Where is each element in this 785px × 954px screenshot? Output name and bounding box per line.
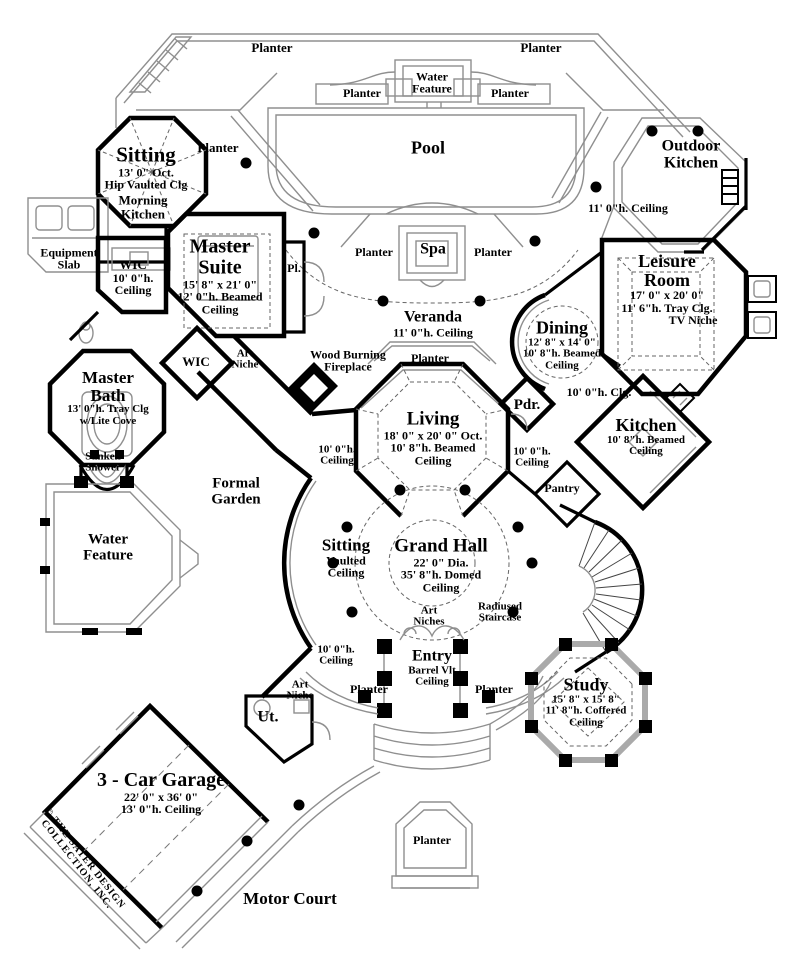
label-pdr: Pdr. <box>514 398 541 414</box>
garage-name: 3 - Car Garage <box>97 770 225 791</box>
veranda-name: Veranda <box>393 309 473 326</box>
outdoor-kitchen-line-1: Outdoor <box>662 138 721 155</box>
label-planter-entry-left: Planter <box>350 683 388 695</box>
entry-ceiling-2: Ceiling <box>408 676 456 687</box>
morning-kitchen-line-2: Kitchen <box>118 207 167 221</box>
living-ceiling-1: 10' 8"h. Beamed <box>384 442 483 454</box>
label-leisure-room: Leisure Room 17' 0" x 20' 0" 11' 6"h. Tr… <box>621 252 712 314</box>
label-pantry: Pantry <box>544 482 579 494</box>
label-art-niches: Art Niches <box>413 606 444 629</box>
terrace-pool-outlines <box>116 34 690 214</box>
label-master-suite: Master Suite 15' 8" x 21' 0" 12' 0"h. Be… <box>178 237 263 316</box>
water-feature-sw-line-2: Feature <box>83 548 133 564</box>
label-tv-niche: TV Niche <box>669 314 718 326</box>
leisure-name-2: Room <box>621 271 712 290</box>
label-planter-spa-left: Planter <box>355 246 393 258</box>
study-ceiling-2: Ceiling <box>546 717 627 728</box>
sitting-ne-name: Sitting <box>105 145 188 167</box>
dining-ceiling-2: Ceiling <box>523 360 601 371</box>
grand-hall-ceiling-1: 35' 8"h. Domed <box>394 569 487 581</box>
label-ceiling10-left: 10' 0"h. Ceiling <box>318 445 355 468</box>
label-water-feature-top: Water Feature <box>412 71 452 96</box>
label-wic-nw: WIC 10' 0"h. Ceiling <box>113 258 154 296</box>
label-sunken-shower: Sunken Shower <box>85 452 120 475</box>
radiused-line-2: Staircase <box>478 613 522 624</box>
label-study: Study 15' 8" x 15' 8" 11' 8"h. Coffered … <box>546 675 627 728</box>
label-planter-entry-right: Planter <box>475 683 513 695</box>
master-bath-ceiling-2: w/Lite Cove <box>67 416 149 427</box>
kitchen-name: Kitchen <box>607 416 685 435</box>
wic-nw-ceiling: Ceiling <box>113 284 154 296</box>
label-ceiling10-gallery: 10' 0"h. Ceiling <box>317 645 354 668</box>
label-art-niche-1: Art Niche <box>232 349 259 372</box>
grand-hall-name: Grand Hall <box>394 536 487 556</box>
label-planter-pool-left: Planter <box>343 87 381 99</box>
label-water-feature-sw: Water Feature <box>83 532 133 563</box>
master-suite-ceiling-1: 12' 0"h. Beamed <box>178 291 263 303</box>
sunken-shower-line-2: Shower <box>85 463 120 474</box>
label-living: Living 18' 0" x 20' 0" Oct. 10' 8"h. Bea… <box>384 409 483 466</box>
label-fireplace: Wood Burning Fireplace <box>310 349 386 374</box>
outdoor-kitchen-line-2: Kitchen <box>662 155 721 172</box>
garage-ceiling: 13' 0"h. Ceiling <box>97 803 225 815</box>
living-ceiling-2: Ceiling <box>384 454 483 466</box>
master-suite-name-1: Master <box>178 237 263 258</box>
formal-garden-line-1: Formal <box>211 476 260 492</box>
water-feature-line-2: Feature <box>412 83 452 95</box>
label-dining: Dining 12' 8" x 14' 0" 10' 8"h. Beamed C… <box>523 318 601 371</box>
label-ok-ceiling: 11' 0"h. Ceiling <box>588 202 668 214</box>
label-planter-top-right: Planter <box>520 41 561 55</box>
label-sitting-center: Sitting Vaulted Ceiling <box>322 537 370 580</box>
label-motor-court: Motor Court <box>243 890 337 908</box>
floor-plan: Planter Planter Water Feature Planter Pl… <box>0 0 785 954</box>
fireplace-line-2: Fireplace <box>310 361 386 373</box>
label-spa: Spa <box>420 242 446 259</box>
label-morning-kitchen: Morning Kitchen <box>118 193 167 220</box>
utility-garage-walls <box>24 696 380 949</box>
master-bath-name-1: Master <box>67 369 149 387</box>
master-bath-name-2: Bath <box>67 387 149 405</box>
ceiling10-right-line-2: Ceiling <box>513 458 550 469</box>
label-wic-2: WIC <box>182 355 209 369</box>
art-niche-1-line-2: Niche <box>232 360 259 371</box>
label-utility: Ut. <box>258 710 279 727</box>
art-niche-2-line-2: Niche <box>287 691 314 702</box>
label-planter-top-left: Planter <box>251 41 292 55</box>
formal-garden-line-2: Garden <box>211 492 260 508</box>
equipment-slab-line-2: Slab <box>40 259 97 271</box>
label-pool: Pool <box>411 139 445 158</box>
kitchen-ceiling-2: Ceiling <box>607 446 685 457</box>
ceiling10-left-line-2: Ceiling <box>318 456 355 467</box>
living-name: Living <box>384 409 483 429</box>
art-niches-line-2: Niches <box>413 617 444 628</box>
leisure-name-1: Leisure <box>621 252 712 271</box>
label-veranda: Veranda 11' 0"h. Ceiling <box>393 309 473 338</box>
entry-name: Entry <box>408 648 456 665</box>
label-master-bath: Master Bath 13' 0"h. Tray Clg w/Lite Cov… <box>67 369 149 427</box>
label-entry: Entry Barrel Vlt Ceiling <box>408 648 456 688</box>
label-planter-bottom: Planter <box>413 834 451 846</box>
label-kitchen: Kitchen 10' 8"h. Beamed Ceiling <box>607 416 685 458</box>
label-equipment-slab: Equipment Slab <box>40 247 97 272</box>
label-formal-garden: Formal Garden <box>211 476 260 507</box>
label-planter-sitting: Planter <box>197 141 238 155</box>
sitting-ne-ceiling: Hip Vaulted Clg <box>105 179 188 191</box>
label-sitting-ne: Sitting 13' 0" Oct. Hip Vaulted Clg <box>105 145 188 192</box>
master-suite-name-2: Suite <box>178 257 263 278</box>
grand-hall-ceiling-2: Ceiling <box>394 581 487 593</box>
water-feature-sw-line-1: Water <box>83 532 133 548</box>
label-ceiling10-right: 10' 0"h. Ceiling <box>513 447 550 470</box>
label-planter-living: Planter <box>411 352 449 364</box>
label-outdoor-kitchen: Outdoor Kitchen <box>662 138 721 171</box>
label-planter-pool-right: Planter <box>491 87 529 99</box>
veranda-ceiling: 11' 0"h. Ceiling <box>393 326 473 338</box>
label-garage: 3 - Car Garage 22' 0" x 36' 0" 13' 0"h. … <box>97 770 225 816</box>
morning-kitchen-line-1: Morning <box>118 193 167 207</box>
sitting-center-ceiling-2: Ceiling <box>322 567 370 579</box>
label-clg-10: 10' 0"h. Clg. <box>567 386 632 398</box>
master-suite-ceiling-2: Ceiling <box>178 303 263 315</box>
label-radiused-staircase: Radiused Staircase <box>478 602 522 625</box>
study-ceiling-1: 11' 8"h. Coffered <box>546 706 627 717</box>
label-grand-hall: Grand Hall 22' 0" Dia. 35' 8"h. Domed Ce… <box>394 536 487 593</box>
dining-name: Dining <box>523 318 601 337</box>
label-pl-closet: Pl. <box>287 262 301 274</box>
label-art-niche-2: Art Niche <box>287 680 314 703</box>
sitting-center-name: Sitting <box>322 537 370 555</box>
study-name: Study <box>546 675 627 694</box>
dining-ceiling-1: 10' 8"h. Beamed <box>523 349 601 360</box>
ceiling10-gallery-line-2: Ceiling <box>317 656 354 667</box>
label-planter-spa-right: Planter <box>474 246 512 258</box>
wic-nw-name: WIC <box>113 258 154 272</box>
